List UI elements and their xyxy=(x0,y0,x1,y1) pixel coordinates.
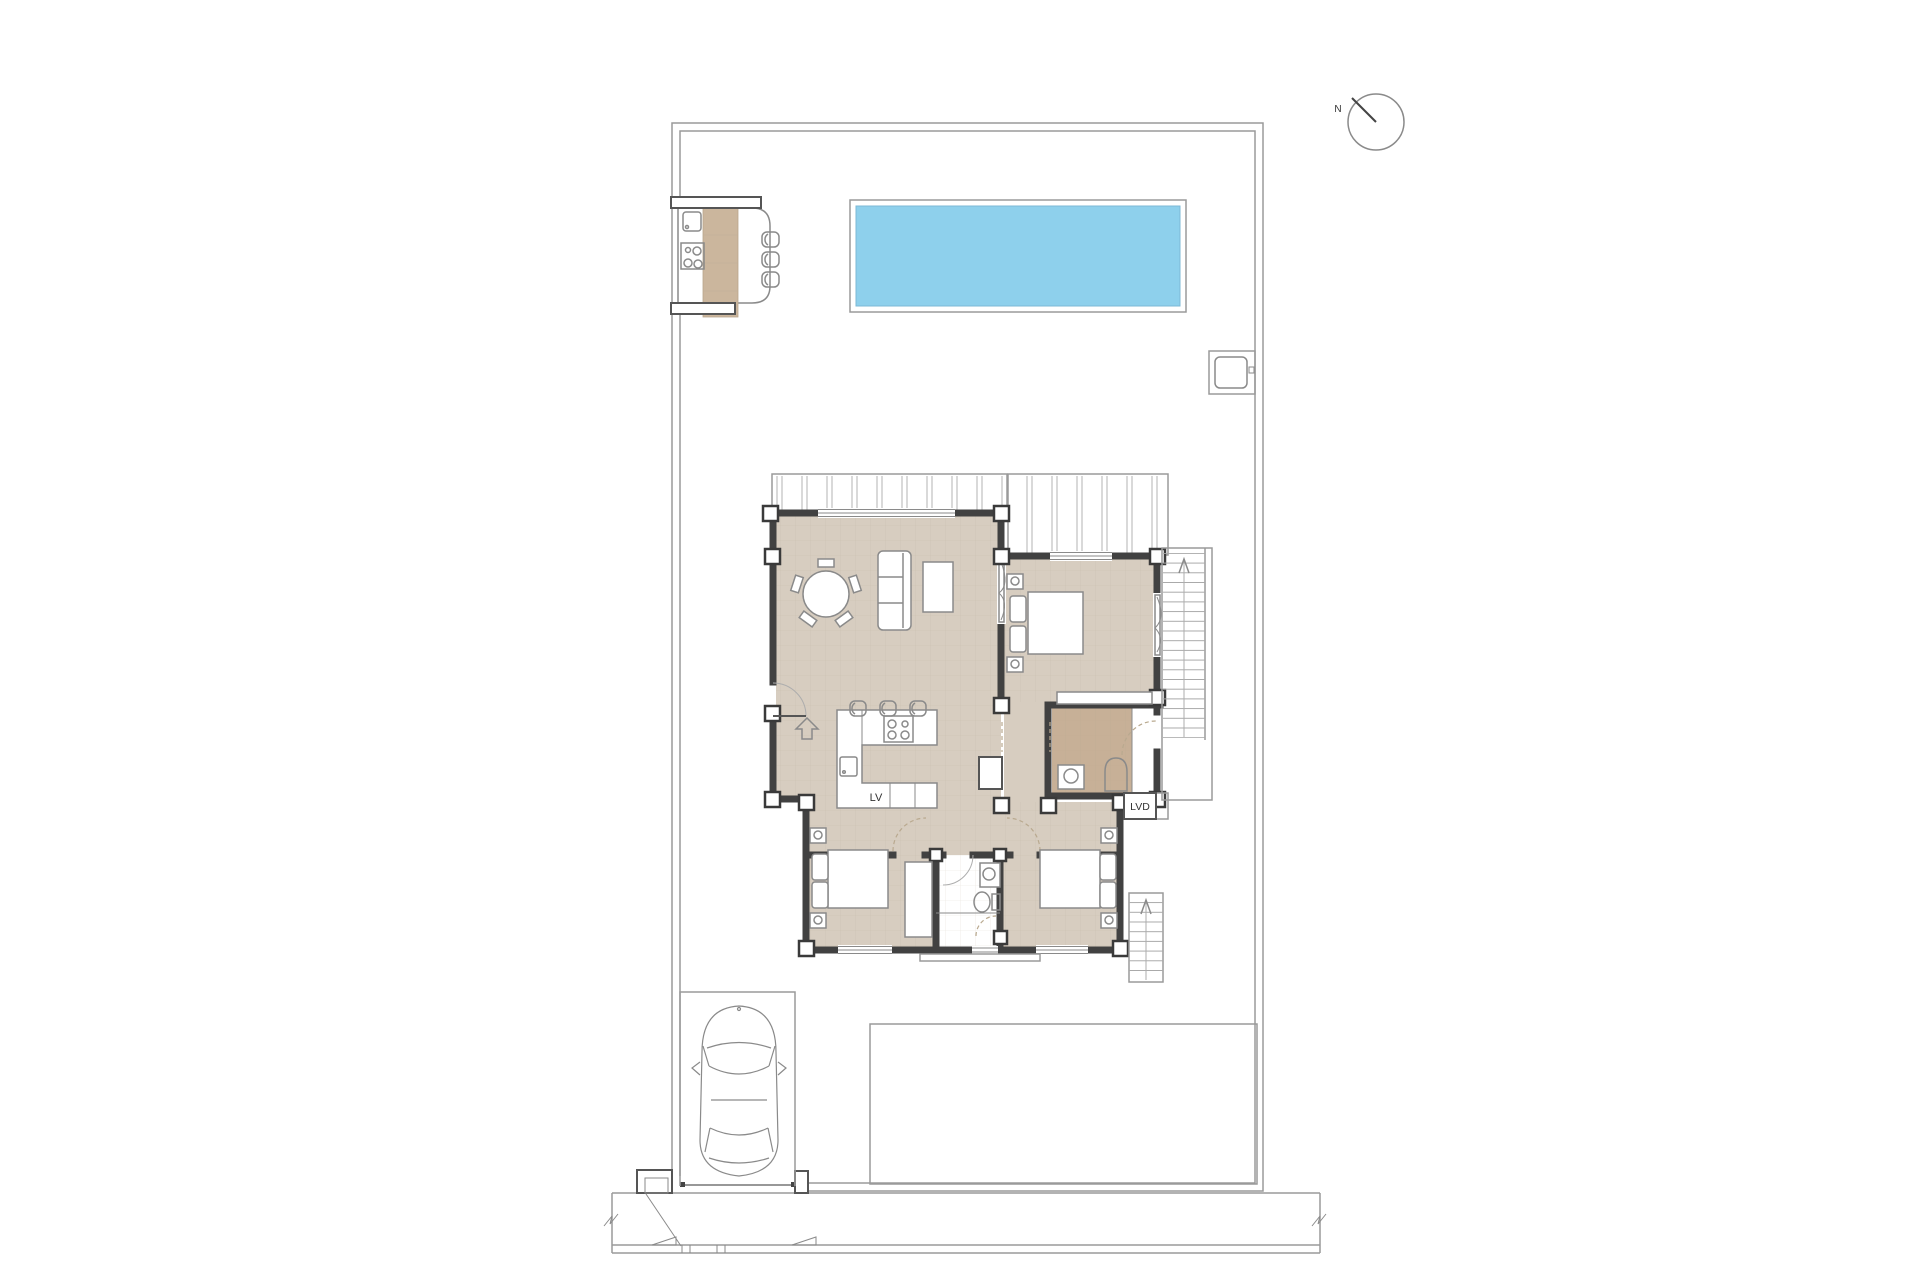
car-mirrors xyxy=(692,1062,786,1075)
pergola-living xyxy=(772,474,1007,513)
car-c-pillars xyxy=(705,1128,773,1152)
car-trunk-line xyxy=(709,1158,769,1163)
coffee-table xyxy=(923,562,953,612)
staircase-main xyxy=(1162,548,1212,800)
car-body xyxy=(700,1006,778,1176)
car-rear-window xyxy=(710,1128,768,1135)
pool-equipment-box xyxy=(1209,351,1255,394)
pillow xyxy=(1010,626,1026,652)
compass-needle xyxy=(1352,98,1376,122)
rear-step xyxy=(920,954,1040,961)
pillow xyxy=(1100,854,1116,880)
north-compass: N xyxy=(1334,94,1404,150)
bar-counter-strip xyxy=(703,205,738,317)
car-windshield xyxy=(709,1066,769,1074)
curb-marks xyxy=(652,1237,816,1245)
washing-machine-label: LVD xyxy=(1130,801,1150,813)
swimming-pool xyxy=(850,200,1186,312)
pergola-bedroom xyxy=(1008,474,1168,555)
gate-post xyxy=(795,1171,808,1193)
parking-space xyxy=(680,992,795,1186)
street-sidewalk xyxy=(604,1193,1326,1253)
break-mark-right xyxy=(1312,1214,1326,1226)
pillow xyxy=(1010,596,1026,622)
car-badge xyxy=(738,1008,741,1011)
dining-table xyxy=(803,571,849,617)
master-bed xyxy=(1028,592,1083,654)
patio-terrace xyxy=(870,1024,1257,1184)
staircase-exterior xyxy=(1129,893,1163,982)
wardrobe xyxy=(905,862,932,937)
pillow xyxy=(1100,882,1116,908)
pool-water xyxy=(856,206,1180,306)
bed xyxy=(828,850,888,908)
kitchen-frame-bottom xyxy=(671,303,735,314)
car xyxy=(692,1006,786,1176)
master-bedroom-window xyxy=(1050,551,1112,561)
dishwasher-label: LV xyxy=(870,792,883,804)
corridor-floor xyxy=(1004,702,1045,808)
pillow xyxy=(812,854,828,880)
outdoor-kitchen xyxy=(671,197,779,317)
floor-plan-page: LV xyxy=(0,0,1920,1280)
hall-door-leaf xyxy=(979,757,1002,789)
pavement-joints xyxy=(682,1245,725,1253)
pillow xyxy=(812,882,828,908)
bedroom-2-window xyxy=(1036,945,1088,955)
kitchen-frame-top xyxy=(671,197,761,208)
sofa xyxy=(878,551,911,630)
pedestrian-gate-leaf xyxy=(646,1194,681,1246)
master-slider-door xyxy=(1153,593,1162,657)
floor-plan-canvas: LV xyxy=(0,0,1920,1280)
bed xyxy=(1040,850,1100,908)
living-slider-door xyxy=(997,558,1006,624)
built-in-wardrobe xyxy=(1057,692,1152,704)
break-mark-left xyxy=(604,1214,618,1226)
car-a-pillars xyxy=(703,1046,775,1066)
bedroom-3-window xyxy=(838,945,892,955)
car-hood-line xyxy=(707,1043,771,1049)
north-label: N xyxy=(1334,104,1341,115)
gate-pillar xyxy=(637,1170,672,1193)
living-room-window xyxy=(818,508,955,518)
